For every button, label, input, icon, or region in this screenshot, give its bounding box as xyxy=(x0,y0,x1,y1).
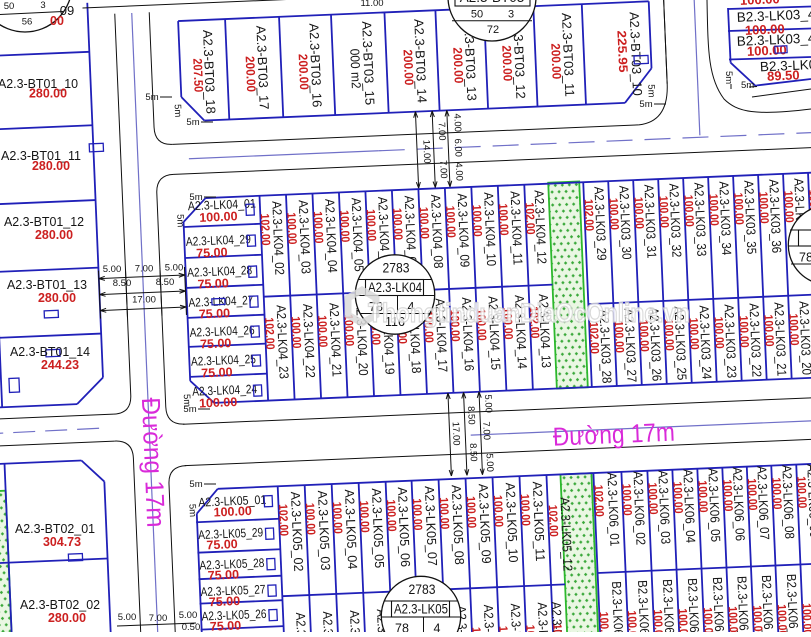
svg-text:75.00: 75.00 xyxy=(198,306,230,321)
svg-text:5.00: 5.00 xyxy=(484,453,496,472)
svg-text:A2.3-BT03: A2.3-BT03 xyxy=(460,0,525,5)
svg-text:100.00: 100.00 xyxy=(606,198,621,231)
svg-text:00: 00 xyxy=(50,14,64,28)
svg-text:2783: 2783 xyxy=(409,582,436,597)
svg-text:7.00: 7.00 xyxy=(437,160,449,179)
svg-text:5.00: 5.00 xyxy=(179,610,198,621)
svg-text:8.50: 8.50 xyxy=(467,443,479,462)
svg-text:100.00: 100.00 xyxy=(656,196,671,229)
svg-text:100.00: 100.00 xyxy=(443,206,458,239)
svg-text:5.00: 5.00 xyxy=(103,264,122,275)
svg-text:200.00: 200.00 xyxy=(296,54,311,91)
svg-text:75.00: 75.00 xyxy=(209,594,241,609)
svg-text:280.00: 280.00 xyxy=(38,290,76,305)
svg-text:100.00: 100.00 xyxy=(496,203,511,236)
svg-text:100.00: 100.00 xyxy=(469,627,484,632)
svg-text:5m: 5m xyxy=(741,80,754,91)
svg-text:225.95: 225.95 xyxy=(614,30,630,73)
svg-text:100.00: 100.00 xyxy=(701,607,716,632)
svg-text:5.00: 5.00 xyxy=(165,263,184,274)
svg-text:6.00: 6.00 xyxy=(452,138,464,157)
svg-text:89.50: 89.50 xyxy=(767,67,800,83)
svg-text:100.00: 100.00 xyxy=(745,478,760,511)
svg-text:7.00: 7.00 xyxy=(149,613,168,624)
svg-text:100.00: 100.00 xyxy=(384,499,399,532)
svg-text:100.00: 100.00 xyxy=(213,504,252,520)
svg-text:200.00: 200.00 xyxy=(548,43,563,80)
svg-text:102.00: 102.00 xyxy=(276,504,291,537)
svg-text:A2.3-LK05_23: A2.3-LK05_23 xyxy=(293,612,311,632)
svg-text:5m: 5m xyxy=(172,104,184,118)
svg-text:100.00: 100.00 xyxy=(747,42,787,59)
svg-text:5m: 5m xyxy=(645,84,657,98)
svg-text:50: 50 xyxy=(4,1,15,12)
svg-text:102.00: 102.00 xyxy=(523,202,538,235)
svg-text:4.00: 4.00 xyxy=(453,162,465,181)
svg-text:200.00: 200.00 xyxy=(499,45,514,82)
svg-text:17.00: 17.00 xyxy=(132,295,156,306)
svg-text:100.00: 100.00 xyxy=(437,497,452,530)
svg-text:000 m2: 000 m2 xyxy=(347,48,364,89)
svg-text:56: 56 xyxy=(22,17,33,28)
svg-text:100.00: 100.00 xyxy=(523,625,538,632)
svg-text:50: 50 xyxy=(471,9,483,21)
svg-text:100.00: 100.00 xyxy=(625,610,640,632)
svg-text:5m: 5m xyxy=(145,92,158,103)
svg-text:244.23: 244.23 xyxy=(41,357,79,372)
svg-text:4.00: 4.00 xyxy=(451,113,463,132)
svg-text:100.00: 100.00 xyxy=(761,314,776,347)
svg-text:100.00: 100.00 xyxy=(720,479,735,512)
svg-text:0.50: 0.50 xyxy=(182,622,201,632)
svg-text:8.50: 8.50 xyxy=(113,278,132,289)
svg-text:100.00: 100.00 xyxy=(470,204,485,237)
svg-text:100.00: 100.00 xyxy=(311,211,326,244)
svg-text:100.00: 100.00 xyxy=(750,605,765,632)
svg-text:100.00: 100.00 xyxy=(800,603,811,632)
svg-text:5m: 5m xyxy=(186,504,198,518)
svg-text:75.00: 75.00 xyxy=(196,245,228,260)
svg-text:5m: 5m xyxy=(723,71,734,84)
svg-text:100.00: 100.00 xyxy=(736,315,751,348)
svg-text:100.00: 100.00 xyxy=(496,626,511,632)
svg-text:100.00: 100.00 xyxy=(410,498,425,531)
svg-text:102.00: 102.00 xyxy=(581,199,596,232)
svg-text:75.00: 75.00 xyxy=(206,537,238,552)
svg-text:100.00: 100.00 xyxy=(491,495,506,528)
svg-text:100.00: 100.00 xyxy=(676,608,691,632)
svg-text:304.73: 304.73 xyxy=(43,534,81,549)
svg-text:Đường 17m: Đường 17m xyxy=(136,397,171,528)
svg-text:5m: 5m xyxy=(183,404,196,415)
svg-text:8.50: 8.50 xyxy=(156,277,175,288)
svg-text:3: 3 xyxy=(508,9,514,21)
svg-text:100.00: 100.00 xyxy=(303,503,318,536)
svg-text:75.00: 75.00 xyxy=(201,365,233,380)
svg-text:7.00: 7.00 xyxy=(135,264,154,275)
svg-text:100.00: 100.00 xyxy=(775,604,790,632)
svg-text:8.50: 8.50 xyxy=(465,406,477,425)
svg-text:100.00: 100.00 xyxy=(651,609,666,632)
svg-text:78: 78 xyxy=(799,251,811,265)
svg-text:100.00: 100.00 xyxy=(464,496,479,529)
svg-text:100.00: 100.00 xyxy=(786,313,801,346)
svg-text:280.00: 280.00 xyxy=(48,610,86,625)
svg-text:100.00: 100.00 xyxy=(337,210,352,243)
svg-text:5m: 5m xyxy=(639,99,652,110)
svg-text:ThongtinduanDiaOcOnline.vn: ThongtinduanDiaOcOnline.vn xyxy=(368,298,690,328)
svg-text:5m: 5m xyxy=(186,117,199,128)
svg-text:5m: 5m xyxy=(189,192,202,203)
svg-text:100.00: 100.00 xyxy=(681,195,696,228)
svg-text:100.00: 100.00 xyxy=(199,209,238,225)
svg-text:100.00: 100.00 xyxy=(518,494,533,527)
svg-text:A2.3-LK05_22: A2.3-LK05_22 xyxy=(320,611,338,632)
svg-text:102.00: 102.00 xyxy=(546,504,561,537)
svg-text:100.00: 100.00 xyxy=(726,606,741,632)
svg-text:Đường 17m: Đường 17m xyxy=(552,417,675,452)
svg-text:100.00: 100.00 xyxy=(199,395,238,411)
svg-text:102.00: 102.00 xyxy=(591,485,606,518)
svg-text:2783: 2783 xyxy=(383,261,410,276)
svg-text:78: 78 xyxy=(395,622,409,633)
svg-text:207.50: 207.50 xyxy=(190,58,205,93)
svg-text:102.00: 102.00 xyxy=(258,213,273,246)
svg-text:A2.3-LK05: A2.3-LK05 xyxy=(394,602,448,617)
svg-text:100.00: 100.00 xyxy=(597,611,612,632)
svg-text:5m: 5m xyxy=(174,214,186,228)
svg-text:11.00: 11.00 xyxy=(360,0,383,9)
svg-text:72: 72 xyxy=(487,24,499,36)
svg-text:100.00: 100.00 xyxy=(781,190,796,223)
svg-text:102.00: 102.00 xyxy=(550,623,565,632)
svg-text:14.00: 14.00 xyxy=(420,140,432,164)
svg-text:280.00: 280.00 xyxy=(29,86,67,101)
svg-text:100.00: 100.00 xyxy=(390,208,405,241)
svg-text:7.00: 7.00 xyxy=(480,421,492,440)
svg-text:100.00: 100.00 xyxy=(330,502,345,535)
svg-text:100.00: 100.00 xyxy=(695,480,710,513)
svg-text:280.00: 280.00 xyxy=(35,227,73,242)
svg-text:75.00: 75.00 xyxy=(197,276,229,291)
svg-text:100.00: 100.00 xyxy=(619,483,634,516)
svg-text:200.00: 200.00 xyxy=(243,56,258,93)
svg-text:100.00: 100.00 xyxy=(794,476,809,509)
svg-text:100.00: 100.00 xyxy=(670,481,685,514)
svg-text:A2.3-LK05_21: A2.3-LK05_21 xyxy=(347,610,365,632)
svg-text:100.00: 100.00 xyxy=(631,197,646,230)
svg-text:100.00: 100.00 xyxy=(711,316,726,349)
svg-text:A2.3-LK04: A2.3-LK04 xyxy=(368,280,422,295)
svg-text:3: 3 xyxy=(40,0,45,11)
svg-text:75.00: 75.00 xyxy=(200,336,232,351)
svg-text:200.00: 200.00 xyxy=(450,47,465,84)
svg-text:200.00: 200.00 xyxy=(401,49,416,86)
svg-text:4: 4 xyxy=(434,622,441,633)
svg-text:75.00: 75.00 xyxy=(207,567,239,582)
svg-text:100.00: 100.00 xyxy=(315,315,330,348)
svg-text:5m: 5m xyxy=(189,479,202,490)
svg-text:280.00: 280.00 xyxy=(32,158,70,173)
svg-text:75.00: 75.00 xyxy=(210,618,242,632)
svg-text:100.00: 100.00 xyxy=(284,212,299,245)
svg-text:100.00: 100.00 xyxy=(706,193,721,226)
svg-text:7.00: 7.00 xyxy=(436,122,448,141)
svg-text:100.00: 100.00 xyxy=(756,191,771,224)
svg-text:5.00: 5.00 xyxy=(118,612,137,623)
svg-text:100.00: 100.00 xyxy=(417,207,432,240)
svg-text:17.00: 17.00 xyxy=(450,422,462,446)
svg-text:100.00: 100.00 xyxy=(769,477,784,510)
svg-text:100.00: 100.00 xyxy=(645,482,660,515)
svg-text:100.00: 100.00 xyxy=(364,209,379,242)
svg-text:102.00: 102.00 xyxy=(262,317,277,350)
svg-text:5.00: 5.00 xyxy=(482,394,494,413)
svg-text:100.00: 100.00 xyxy=(289,316,304,349)
svg-text:100.00: 100.00 xyxy=(731,192,746,225)
svg-text:100.00: 100.00 xyxy=(357,500,372,533)
